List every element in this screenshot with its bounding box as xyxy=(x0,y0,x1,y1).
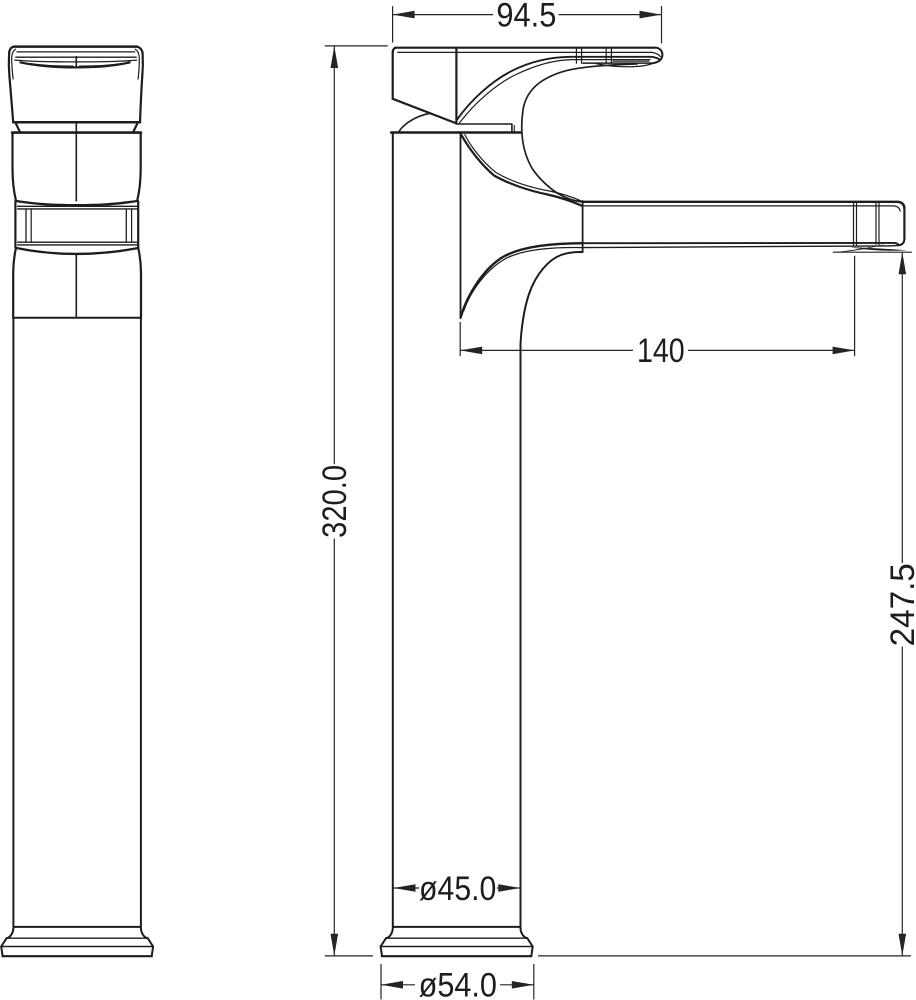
svg-text:ø54.0: ø54.0 xyxy=(419,967,497,1000)
svg-text:320.0: 320.0 xyxy=(316,465,354,538)
svg-text:94.5: 94.5 xyxy=(496,0,556,34)
svg-text:247.5: 247.5 xyxy=(884,563,916,646)
svg-text:ø45.0: ø45.0 xyxy=(419,870,496,908)
svg-text:140: 140 xyxy=(637,332,685,370)
